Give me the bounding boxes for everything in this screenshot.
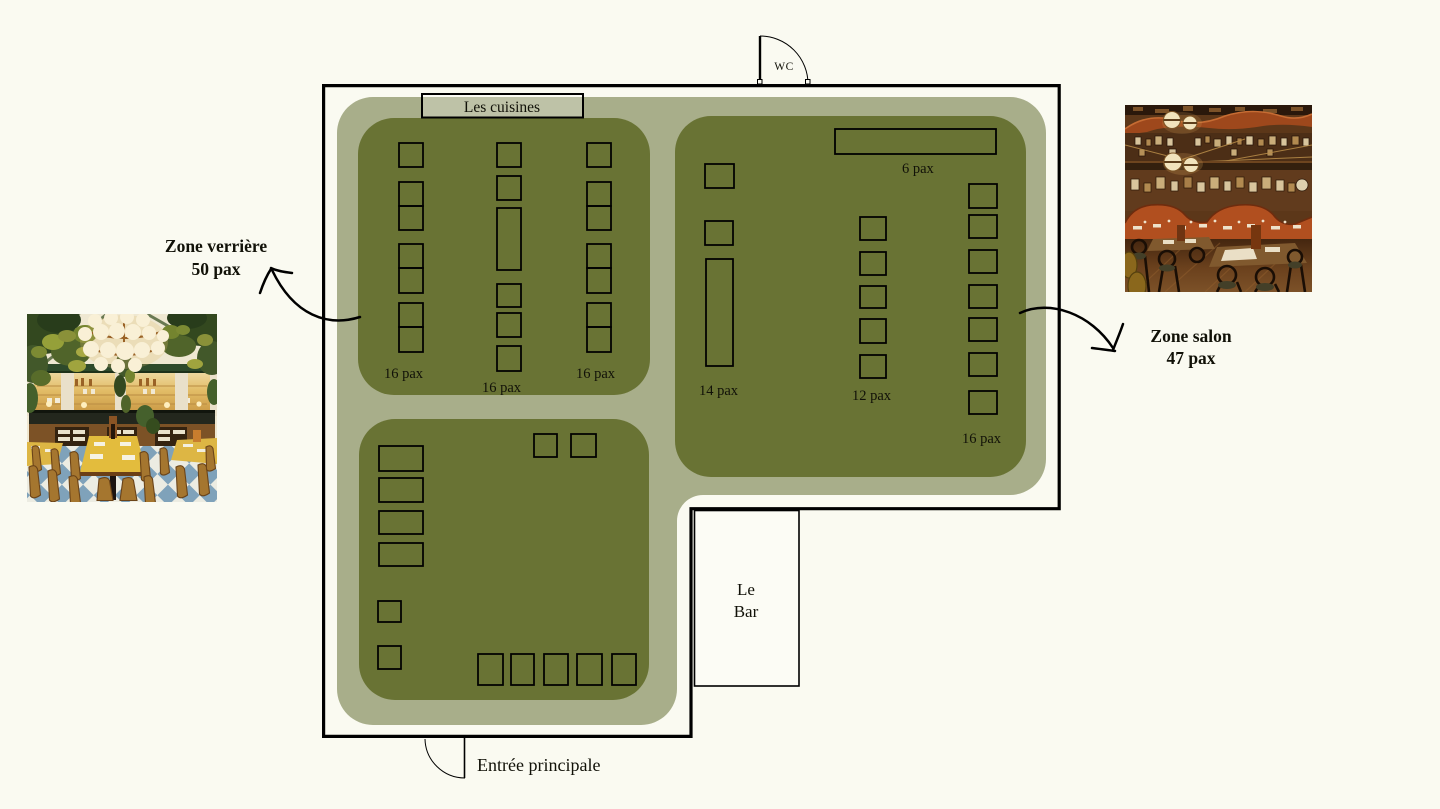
svg-text:16 pax: 16 pax xyxy=(482,380,522,396)
svg-text:WC: WC xyxy=(774,61,794,73)
svg-text:14 pax: 14 pax xyxy=(699,383,739,399)
svg-text:Zone salon: Zone salon xyxy=(1150,326,1231,346)
svg-text:Le: Le xyxy=(737,580,755,599)
svg-text:16 pax: 16 pax xyxy=(576,366,616,382)
svg-text:16 pax: 16 pax xyxy=(962,431,1002,447)
svg-text:12 pax: 12 pax xyxy=(852,388,892,404)
svg-text:47 pax: 47 pax xyxy=(1166,348,1215,368)
svg-text:Entrée principale: Entrée principale xyxy=(477,755,600,775)
svg-text:Zone verrière: Zone verrière xyxy=(165,236,267,256)
svg-text:50 pax: 50 pax xyxy=(191,259,240,279)
svg-text:16 pax: 16 pax xyxy=(384,366,424,382)
svg-text:6 pax: 6 pax xyxy=(902,161,935,177)
svg-text:Bar: Bar xyxy=(734,602,759,621)
svg-text:Les cuisines: Les cuisines xyxy=(464,99,540,116)
